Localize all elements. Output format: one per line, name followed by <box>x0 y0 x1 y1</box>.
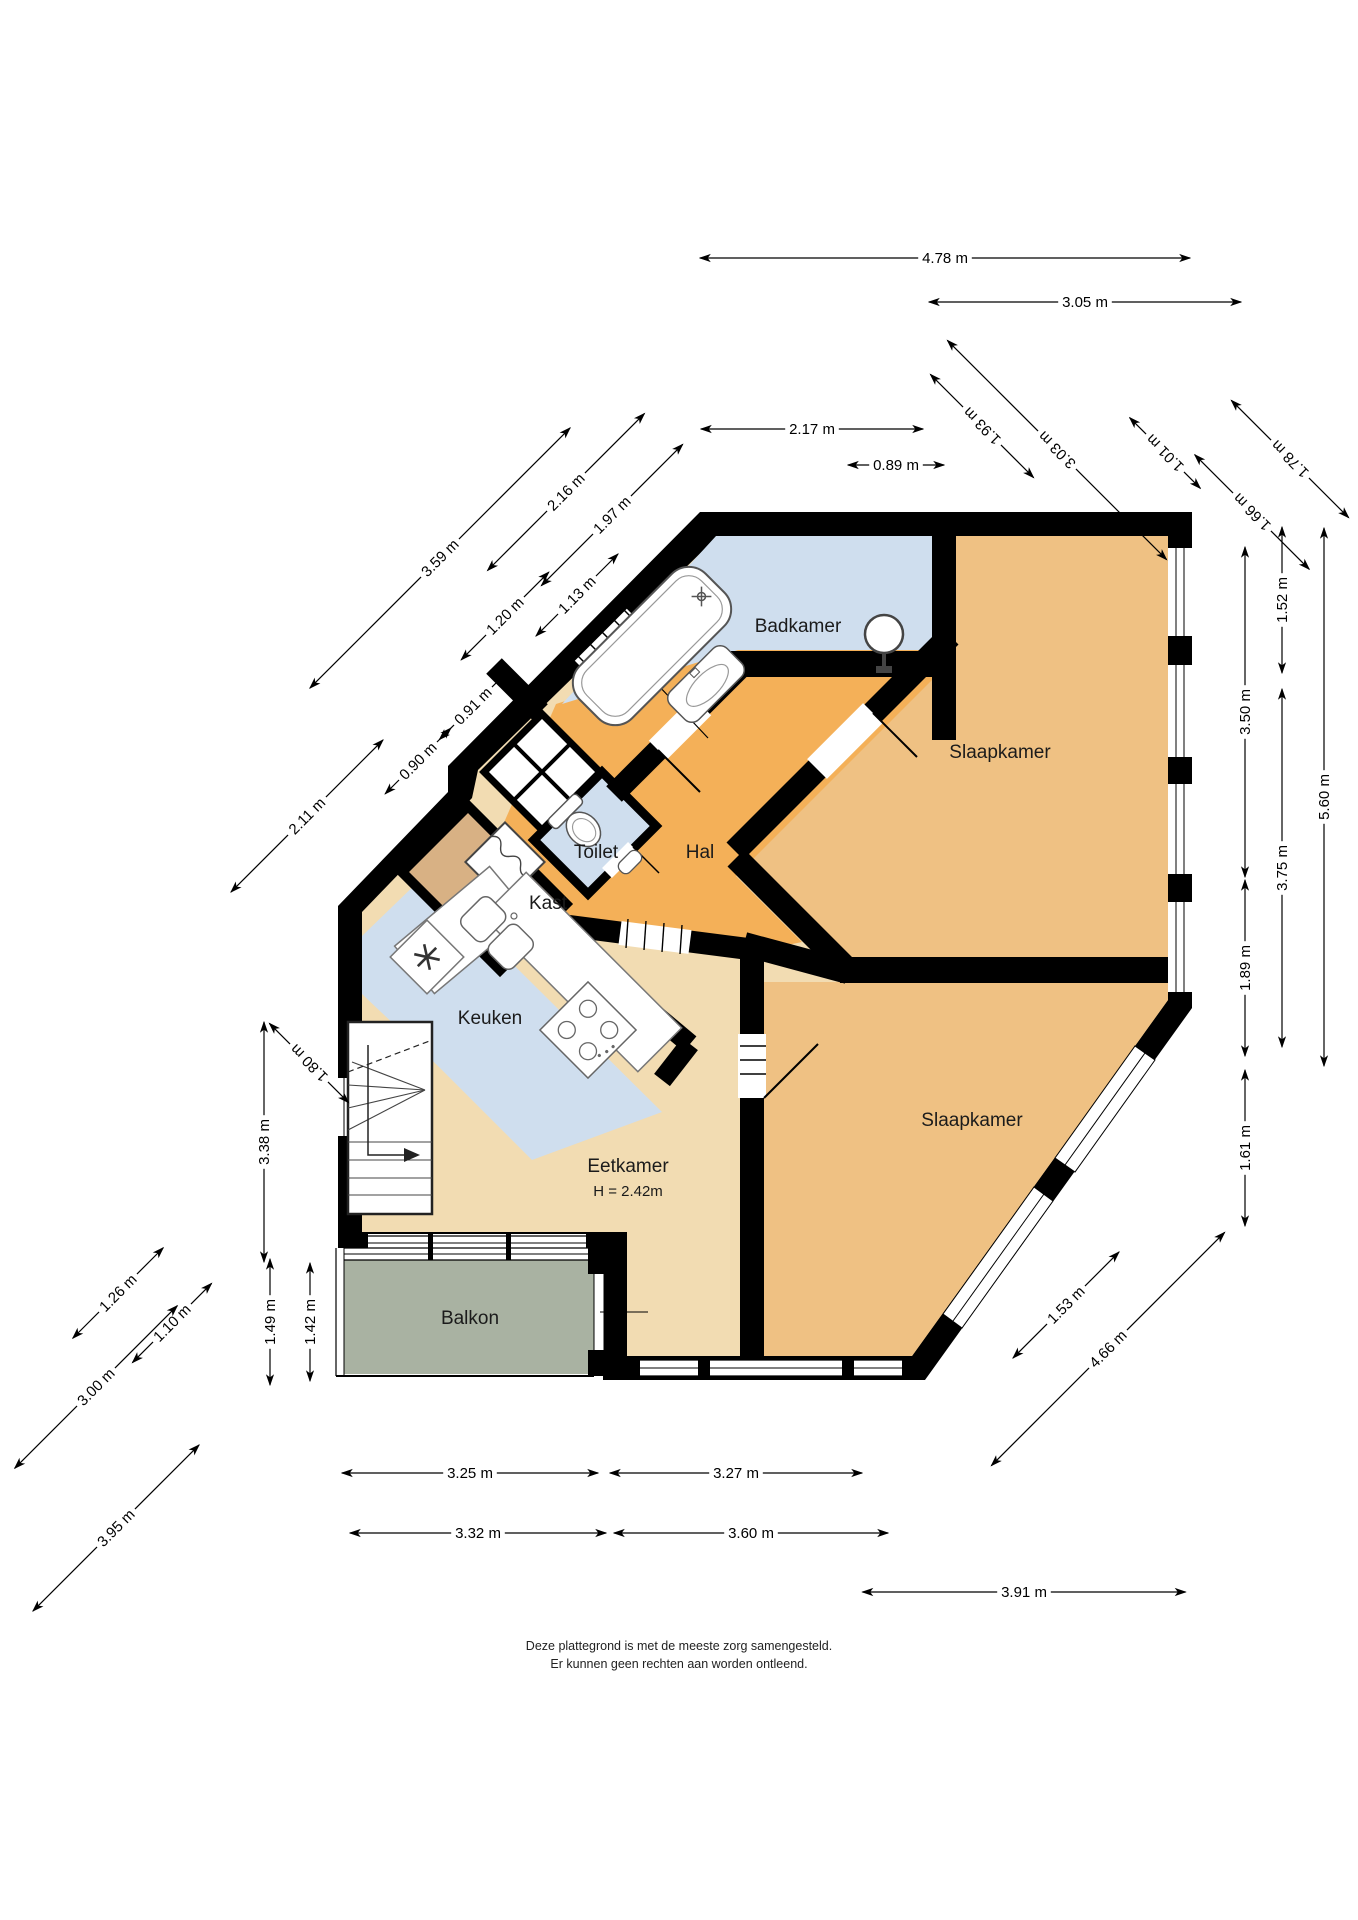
dimension: 3.27 m <box>610 1465 862 1483</box>
dimension: 1.10 m <box>126 1277 218 1369</box>
dimension-label: 3.32 m <box>455 1525 501 1542</box>
room-label-hal: Hal <box>686 842 715 863</box>
dimension-label: 1.52 m <box>1274 577 1291 623</box>
room-label-badkamer: Badkamer <box>755 616 842 637</box>
dimension: 3.38 m <box>256 1022 274 1262</box>
dimension: 2.17 m <box>701 421 923 439</box>
dimension: 3.00 m <box>9 1300 184 1475</box>
dimension: 1.49 m <box>262 1259 280 1385</box>
dimension: 2.11 m <box>225 734 389 898</box>
room-label-kast: Kast <box>529 893 568 914</box>
dimension: 3.32 m <box>350 1525 606 1543</box>
dimension: 4.78 m <box>700 250 1190 268</box>
dimension-label: 1.89 m <box>1237 945 1254 991</box>
dimension-label: 1.13 m <box>555 573 599 617</box>
dimension: 3.59 m <box>304 422 577 695</box>
dimension-label: 3.05 m <box>1062 294 1108 311</box>
room-label-eetkamer-height: H = 2.42m <box>593 1183 663 1200</box>
dimension-label: 1.26 m <box>96 1271 140 1315</box>
dimension: 3.50 m <box>1237 547 1255 877</box>
dimension-label: 3.27 m <box>713 1465 759 1482</box>
dimension-label: 1.80 m <box>287 1040 331 1084</box>
dimension-label: 0.91 m <box>451 684 495 728</box>
dimension-label: 3.95 m <box>94 1506 138 1550</box>
dimension: 1.01 m <box>1124 411 1207 494</box>
dimension-label: 2.11 m <box>286 795 330 839</box>
dimension-label: 1.42 m <box>302 1299 319 1345</box>
room-label-keuken: Keuken <box>458 1008 522 1029</box>
dimension: 3.05 m <box>929 294 1241 312</box>
dimension: 0.90 m <box>379 722 457 800</box>
dimension-label: 4.66 m <box>1086 1327 1130 1371</box>
room-label-eetkamer: Eetkamer <box>587 1156 669 1177</box>
dimension-label: 1.61 m <box>1237 1125 1254 1171</box>
dimension-label: 3.25 m <box>447 1465 493 1482</box>
dimension-label: 1.20 m <box>483 594 527 638</box>
room-label-balkon: Balkon <box>441 1308 499 1329</box>
room-label-slaapkamer2: Slaapkamer <box>921 1110 1023 1131</box>
dimension-label: 2.16 m <box>544 470 588 514</box>
dimension-label: 3.59 m <box>418 536 462 580</box>
room-label-toilet: Toilet <box>574 842 619 863</box>
dimension-label: 1.97 m <box>590 493 634 537</box>
dimension-label: 3.75 m <box>1274 845 1291 891</box>
dimension-label: 0.89 m <box>873 457 919 474</box>
dimension: 1.42 m <box>302 1263 320 1381</box>
dimension: 3.95 m <box>27 1439 206 1618</box>
dimension-label: 1.49 m <box>262 1299 279 1345</box>
dimension: 1.89 m <box>1237 880 1255 1056</box>
dimension-label: 1.53 m <box>1044 1283 1088 1327</box>
dimension-label: 3.00 m <box>74 1365 118 1409</box>
dimension: 0.89 m <box>848 457 944 475</box>
dimension-label: 4.78 m <box>922 250 968 267</box>
disclaimer-text: Deze plattegrond is met de meeste zorg s… <box>526 1638 832 1673</box>
dimension-label: 1.93 m <box>960 403 1004 447</box>
dimension: 1.93 m <box>924 368 1040 484</box>
dimension: 3.60 m <box>614 1525 888 1543</box>
dimension-label: 1.66 m <box>1230 489 1274 533</box>
stairs-icon <box>348 1022 432 1214</box>
dimension-label: 3.60 m <box>728 1525 774 1542</box>
dimension: 1.61 m <box>1237 1070 1255 1226</box>
dimension-label: 3.91 m <box>1001 1584 1047 1601</box>
dimension-label: 5.60 m <box>1316 774 1333 820</box>
dimension-label: 3.03 m <box>1035 427 1079 471</box>
dimension-label: 1.78 m <box>1268 436 1312 480</box>
dimension-label: 1.01 m <box>1143 430 1187 474</box>
dimension-label: 3.50 m <box>1237 689 1254 735</box>
dimension-label: 1.10 m <box>150 1301 194 1345</box>
dimension: 5.60 m <box>1316 528 1334 1066</box>
room-label-slaapkamer1: Slaapkamer <box>949 742 1051 763</box>
dimension: 3.91 m <box>863 1584 1186 1602</box>
floor-plan-canvas: Badkamer Slaapkamer Hal Toilet Kast Keuk… <box>0 0 1358 1920</box>
dimension: 3.75 m <box>1274 689 1292 1047</box>
disclaimer-line-2: Er kunnen geen rechten aan worden ontlee… <box>526 1656 832 1674</box>
dimension: 1.20 m <box>455 566 555 666</box>
dimension-label: 2.17 m <box>789 421 835 438</box>
dimension-label: 0.90 m <box>396 739 440 783</box>
dimension-label: 3.38 m <box>256 1119 273 1165</box>
dimension: 3.25 m <box>342 1465 598 1483</box>
floorplan-page: Badkamer Slaapkamer Hal Toilet Kast Keuk… <box>0 0 1358 1920</box>
disclaimer-line-1: Deze plattegrond is met de meeste zorg s… <box>526 1638 832 1656</box>
